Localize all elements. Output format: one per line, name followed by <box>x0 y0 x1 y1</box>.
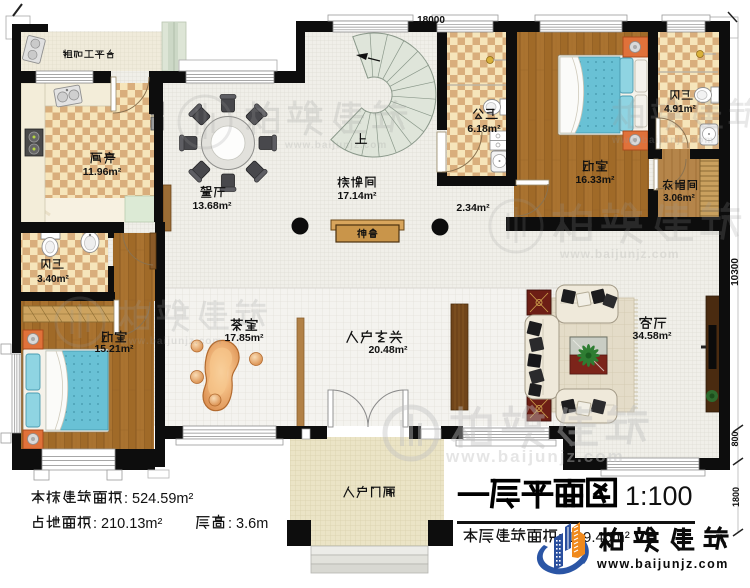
svg-text:1800: 1800 <box>731 487 741 507</box>
svg-text:www.baijunjz.com: www.baijunjz.com <box>559 247 680 261</box>
svg-text:17.14m²: 17.14m² <box>337 190 377 202</box>
svg-text:: 210.13m²: : 210.13m² <box>93 516 162 532</box>
svg-text:11.96m²: 11.96m² <box>83 166 122 178</box>
svg-text:3.40m²: 3.40m² <box>37 274 69 285</box>
svg-text:3.06m²: 3.06m² <box>663 193 695 204</box>
svg-text:www.baijunjz.com: www.baijunjz.com <box>445 447 625 466</box>
svg-text:10300: 10300 <box>730 258 741 286</box>
svg-text:www.baijunjz.com: www.baijunjz.com <box>284 140 387 151</box>
svg-text:2.34m²: 2.34m² <box>456 202 490 214</box>
svg-text:20.48m²: 20.48m² <box>368 344 408 356</box>
svg-text:www.baijunjz.com: www.baijunjz.com <box>119 336 222 347</box>
svg-text:15.21m²: 15.21m² <box>94 343 134 355</box>
svg-text:www.baijunjz.com: www.baijunjz.com <box>596 557 729 571</box>
svg-text:13.68m²: 13.68m² <box>192 200 232 212</box>
svg-text:18000: 18000 <box>417 15 445 26</box>
svg-text:800: 800 <box>730 431 740 446</box>
svg-text:www.baijunjz.com: www.baijunjz.com <box>611 135 714 146</box>
svg-text:4.91m²: 4.91m² <box>664 104 696 115</box>
svg-text:1:100: 1:100 <box>625 481 693 511</box>
svg-text:: 3.6m: : 3.6m <box>228 516 268 532</box>
svg-text:16.33m²: 16.33m² <box>575 174 615 186</box>
svg-text:34.58m²: 34.58m² <box>632 330 672 342</box>
svg-text:: 524.59m²: : 524.59m² <box>124 491 193 507</box>
svg-text:17.85m²: 17.85m² <box>224 332 264 344</box>
svg-text:6.18m²: 6.18m² <box>467 123 501 135</box>
